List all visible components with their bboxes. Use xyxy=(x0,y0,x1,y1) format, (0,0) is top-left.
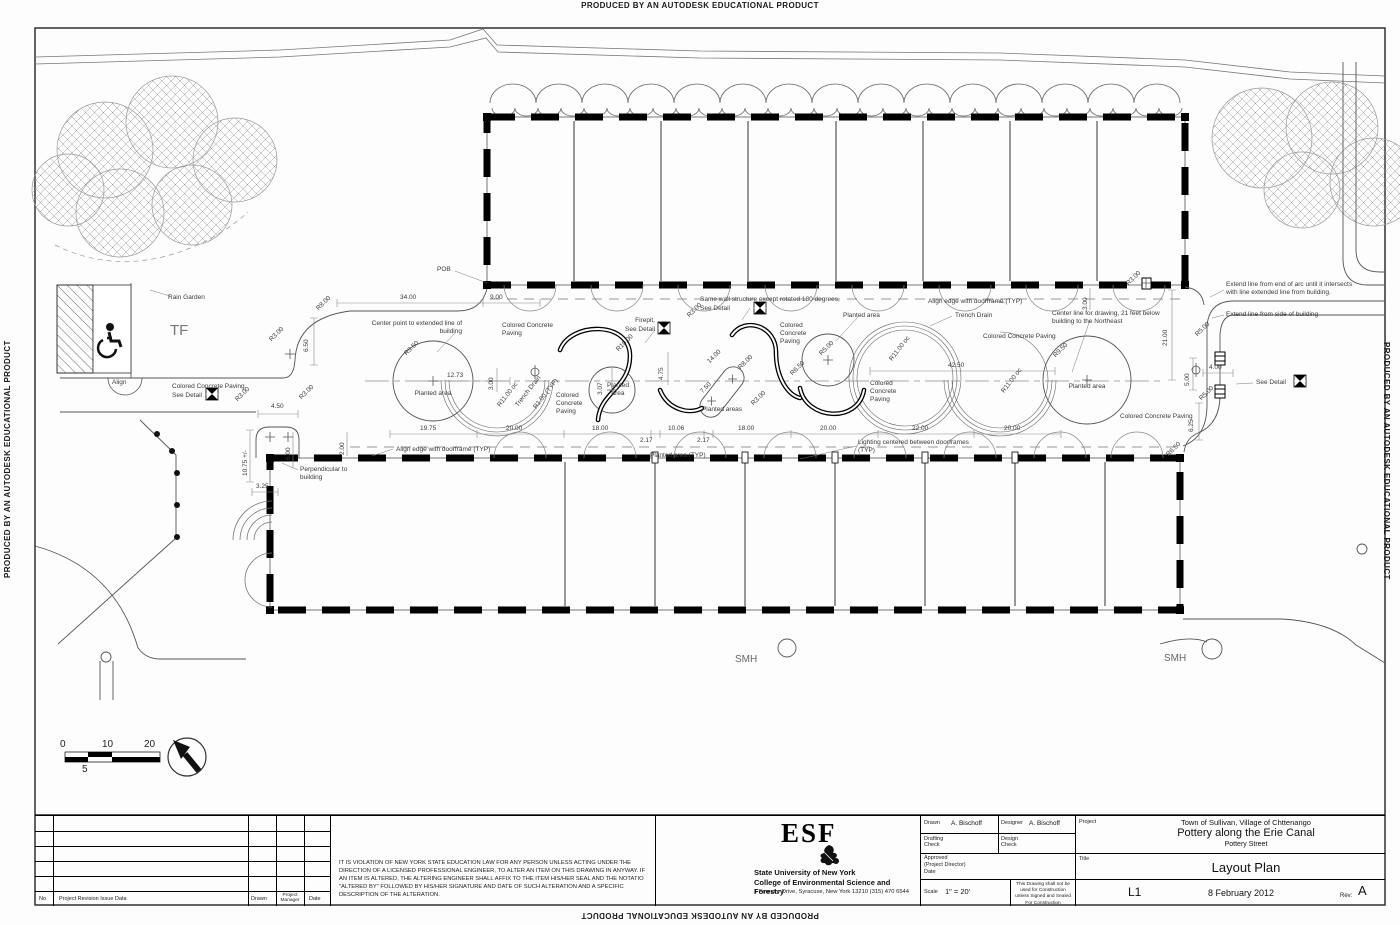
label-planted-a: Planted area xyxy=(413,390,453,398)
signature-block: Drawn A. Bischoff Designer A. Bischoff D… xyxy=(920,816,1075,906)
designer-label: Designer xyxy=(1001,820,1023,826)
esf-university: State University of New York xyxy=(754,868,855,877)
label-pob: POB xyxy=(437,266,451,274)
rev-col-pm: Project Manager xyxy=(277,893,303,903)
label-same-wall-see-detail: See Detail xyxy=(700,305,730,313)
label-smh-2: SMH xyxy=(1164,653,1186,666)
dim-217-b: 2.17 xyxy=(697,437,710,445)
rev-col-date: Date xyxy=(309,896,321,902)
tree-cluster-left xyxy=(32,76,277,262)
scale-tick-10: 10 xyxy=(102,739,113,752)
dim-650: 6.50 xyxy=(303,339,311,352)
project-block: Project Town of Sullivan, Village of Cht… xyxy=(1075,816,1385,906)
scale-tick-20: 20 xyxy=(144,739,155,752)
dim-625: 6.25 xyxy=(1188,419,1196,432)
scale-bar xyxy=(65,752,160,762)
dim-2100: 21.00 xyxy=(1162,330,1170,346)
label-align: Align xyxy=(112,379,126,387)
disclaimer-block: IT IS VIOLATION OF NEW YORK STATE EDUCAT… xyxy=(330,816,655,906)
esf-address: 1 Forestry Drive, Syracuse, New York 132… xyxy=(754,889,909,895)
approved-label-3: Date xyxy=(924,869,936,875)
project-line3: Pottery Street xyxy=(1106,841,1386,848)
label-ccp-left: Colored Concrete Paving xyxy=(172,383,245,391)
title-label: Title xyxy=(1079,856,1089,862)
scale-tick-5: 5 xyxy=(82,764,88,777)
scale-label: Scale xyxy=(924,889,938,895)
label-center-point: Center point to extended line of buildin… xyxy=(352,320,462,336)
tree-cluster-right xyxy=(1212,82,1400,228)
approved-label-1: Approved xyxy=(924,855,948,861)
manholes xyxy=(778,639,1222,659)
dim-300-b: 3.00 xyxy=(1082,297,1090,310)
scale-tick-0: 0 xyxy=(60,739,66,752)
dim-34: 34.00 xyxy=(400,294,416,302)
sheet-number: L1 xyxy=(1128,885,1141,899)
north-arrow-icon xyxy=(168,738,206,776)
label-ccp-3: Colored Concrete Paving xyxy=(780,322,826,346)
dim-2000-a: 20.00 xyxy=(506,425,522,433)
planted-beds xyxy=(393,334,1131,424)
dim-400: 4.00 xyxy=(1209,364,1222,372)
rev-col-drawn: Drawn xyxy=(251,896,267,902)
dim-9: 9.00 xyxy=(490,294,503,302)
building-north xyxy=(483,113,1189,311)
label-ccp-5: Colored Concrete Paving xyxy=(983,333,1059,341)
site-plan-drawing xyxy=(0,0,1400,925)
label-planted-areas: Planted areas xyxy=(700,406,744,414)
watermark-top: PRODUCED BY AN AUTODESK EDUCATIONAL PROD… xyxy=(0,1,1400,10)
watermark-bottom: PRODUCED BY AN AUTODESK EDUCATIONAL PROD… xyxy=(0,911,1400,920)
terrain-contours xyxy=(35,29,1385,83)
title-block: No Project Revision Issue Data Drawn Pro… xyxy=(35,815,1385,906)
label-planted-b: Planted area xyxy=(600,382,636,398)
label-planted-typ: Planted area (TYP) xyxy=(650,452,706,460)
label-extend-arc: Extend line from end of arc until it int… xyxy=(1226,281,1358,297)
label-lighting: Lighting centered between doorframes (TY… xyxy=(858,439,970,455)
sheet-title: Layout Plan xyxy=(1106,860,1386,875)
door-swing-arcs xyxy=(494,432,1163,458)
label-tf: TF xyxy=(170,322,188,341)
dim-200: 2.00 xyxy=(339,442,347,455)
sheet-date: 8 February 2012 xyxy=(1166,888,1316,898)
rev-label: Rev: xyxy=(1340,893,1352,899)
rev-value: A xyxy=(1358,883,1367,898)
construction-note: This Drawing shall not be used for Const… xyxy=(1013,882,1073,907)
label-rain-garden: Rain Garden xyxy=(168,294,205,302)
dim-1006: 10.06 xyxy=(668,425,684,433)
dim-475: 4.75 xyxy=(658,367,666,380)
label-firepit-see-detail: See Detail xyxy=(607,326,655,334)
dim-600: 6.00 xyxy=(285,447,293,460)
dim-1800-b: 18.00 xyxy=(738,425,754,433)
label-ccp-top: Colored Concrete Paving xyxy=(502,322,564,338)
label-same-wall: Same wall structure except rotated 180 d… xyxy=(700,296,840,304)
street-left xyxy=(35,546,246,700)
design-check-label: Design Check xyxy=(1001,836,1031,848)
dim-1075: 10.75 +/- xyxy=(242,450,250,476)
dim-2000-c: 20.00 xyxy=(1004,425,1020,433)
scale-value: 1" = 20' xyxy=(945,887,970,896)
label-ccp-6: Colored Concrete Paving xyxy=(1120,413,1196,421)
building-south xyxy=(233,432,1184,614)
rev-col-no: No xyxy=(39,896,46,902)
label-extend-side: Extend line from side of building xyxy=(1226,311,1318,319)
project-label: Project xyxy=(1079,819,1096,825)
rev-col-desc: Project Revision Issue Data xyxy=(59,896,127,902)
dim-4250: 42.50 xyxy=(948,362,964,370)
esf-block: ESF State University of New York College… xyxy=(655,816,920,906)
label-smh-1: SMH xyxy=(735,654,757,667)
disclaimer-text: IT IS VIOLATION OF NEW YORK STATE EDUCAT… xyxy=(339,859,649,900)
watermark-right: PRODUCED BY AN AUTODESK EDUCATIONAL PROD… xyxy=(1382,342,1391,580)
drawn-value: A. Bischoff xyxy=(951,820,982,827)
crosswalk xyxy=(57,285,131,373)
dim-1273: 12.73 xyxy=(447,372,463,380)
label-align-edge-bottom: Align edge with doorframe (TYP) xyxy=(396,446,490,454)
dim-450: 4.50 xyxy=(271,403,284,411)
drafting-check-label: Drafting Check xyxy=(924,836,954,848)
dim-325: 3.25 xyxy=(256,483,269,491)
project-line2: Pottery along the Erie Canal xyxy=(1106,827,1386,839)
label-center-line-note: Center line for drawing, 21 feet below b… xyxy=(1052,310,1172,326)
project-line1: Town of Sullivan, Village of Chttenango xyxy=(1106,818,1386,827)
approved-label-2: (Project Director) xyxy=(924,862,966,868)
label-see-detail-left: See Detail xyxy=(172,392,202,400)
watermark-left: PRODUCED BY AN AUTODESK EDUCATIONAL PROD… xyxy=(3,340,12,578)
dim-2000-b: 20.00 xyxy=(820,425,836,433)
label-see-detail-right: See Detail xyxy=(1256,379,1286,387)
label-firepit: Firepit, xyxy=(607,317,655,325)
dim-2200: 22.00 xyxy=(912,425,928,433)
curved-steps xyxy=(233,501,272,540)
label-ccp-4: Colored Concrete Paving xyxy=(870,380,916,404)
revision-table: No Project Revision Issue Data Drawn Pro… xyxy=(35,816,330,906)
dim-300-a: 3.00 xyxy=(488,377,496,390)
dim-1975: 19.75 xyxy=(420,425,436,433)
label-planted-c: Planted area xyxy=(843,312,880,320)
dim-1800-a: 18.00 xyxy=(592,425,608,433)
tree-canopy-line xyxy=(490,84,1182,116)
label-perpendicular: Perpendicular to building xyxy=(300,466,358,482)
dim-217-a: 2.17 xyxy=(640,437,653,445)
label-planted-d: Planted area xyxy=(1068,383,1106,391)
dim-500: 5.00 xyxy=(1184,373,1192,386)
designer-value: A. Bischoff xyxy=(1029,820,1060,827)
label-ccp-mid: Colored Concrete Paving xyxy=(556,392,602,416)
label-trench-top: Trench Drain xyxy=(955,312,992,320)
drawn-label: Drawn xyxy=(924,820,940,826)
label-align-edge-top: Align edge with doorframe (TYP) xyxy=(928,298,1022,306)
oak-leaf-icon xyxy=(816,844,842,866)
